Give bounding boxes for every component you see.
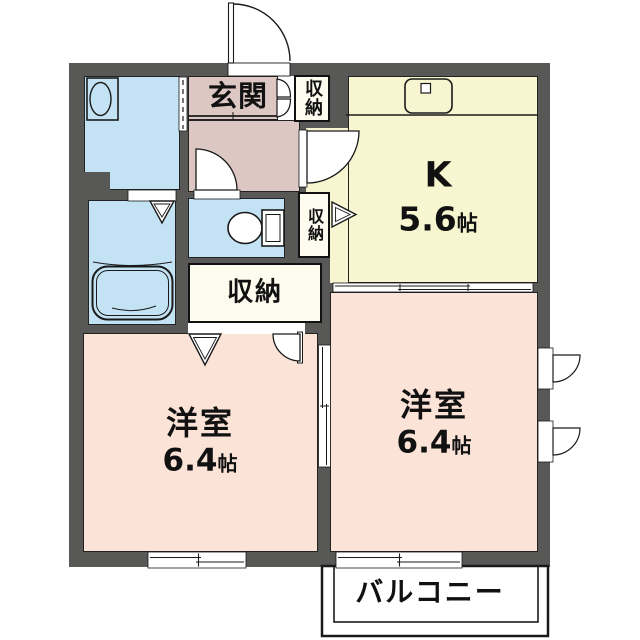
front-door-icon xyxy=(228,3,290,76)
room-right-size: 6.4帖 xyxy=(397,427,472,460)
entrance-step xyxy=(188,112,277,120)
toilet-closet-label: 収納 xyxy=(306,208,322,242)
entrance-closet-label: 収納 xyxy=(303,79,321,117)
kitchen-sink-icon xyxy=(346,79,538,115)
kitchen-size-value: 5.6 xyxy=(398,200,456,239)
kitchen-size-unit: 帖 xyxy=(457,212,478,236)
bathtub-icon xyxy=(93,262,173,320)
balcony-label: バルコニー xyxy=(355,577,504,606)
kitchen-room-sliding-door-icon xyxy=(333,283,533,292)
room-right-size-unit: 帖 xyxy=(451,434,471,458)
main-closet-label: 収納 xyxy=(227,279,283,306)
room-left-size-value: 6.4 xyxy=(163,443,218,479)
left-room-window-icon xyxy=(148,552,246,568)
entrance-closet-door-icon xyxy=(277,79,291,117)
floorplan: 玄関 収納 収納 収納 K 5.6帖 洋室 6.4帖 洋室 6.4帖 バルコニー xyxy=(0,0,640,640)
balcony-door-icon xyxy=(336,552,462,568)
room-right-label: 洋室 xyxy=(400,389,468,423)
kitchen-door-icon xyxy=(299,130,359,187)
main-closet-door-icon xyxy=(188,323,305,365)
room-left-size-unit: 帖 xyxy=(217,452,237,476)
toilet-icon xyxy=(228,210,284,246)
kitchen-label: K xyxy=(424,158,451,195)
bathroom-door-icon xyxy=(128,190,176,223)
rooms-sliding-door-icon xyxy=(319,345,331,467)
toilet-door-icon xyxy=(194,149,240,199)
room-left-label: 洋室 xyxy=(166,407,234,441)
room-left-size: 6.4帖 xyxy=(163,445,238,478)
right-window-icons xyxy=(538,348,580,462)
washbasin-icon xyxy=(87,78,118,120)
entrance-label: 玄関 xyxy=(208,81,268,111)
closet-folding-door-icon xyxy=(332,202,356,227)
kitchen-size: 5.6帖 xyxy=(398,203,477,238)
washroom-sliding-door-icon xyxy=(179,77,187,131)
room-right-size-value: 6.4 xyxy=(397,425,452,461)
